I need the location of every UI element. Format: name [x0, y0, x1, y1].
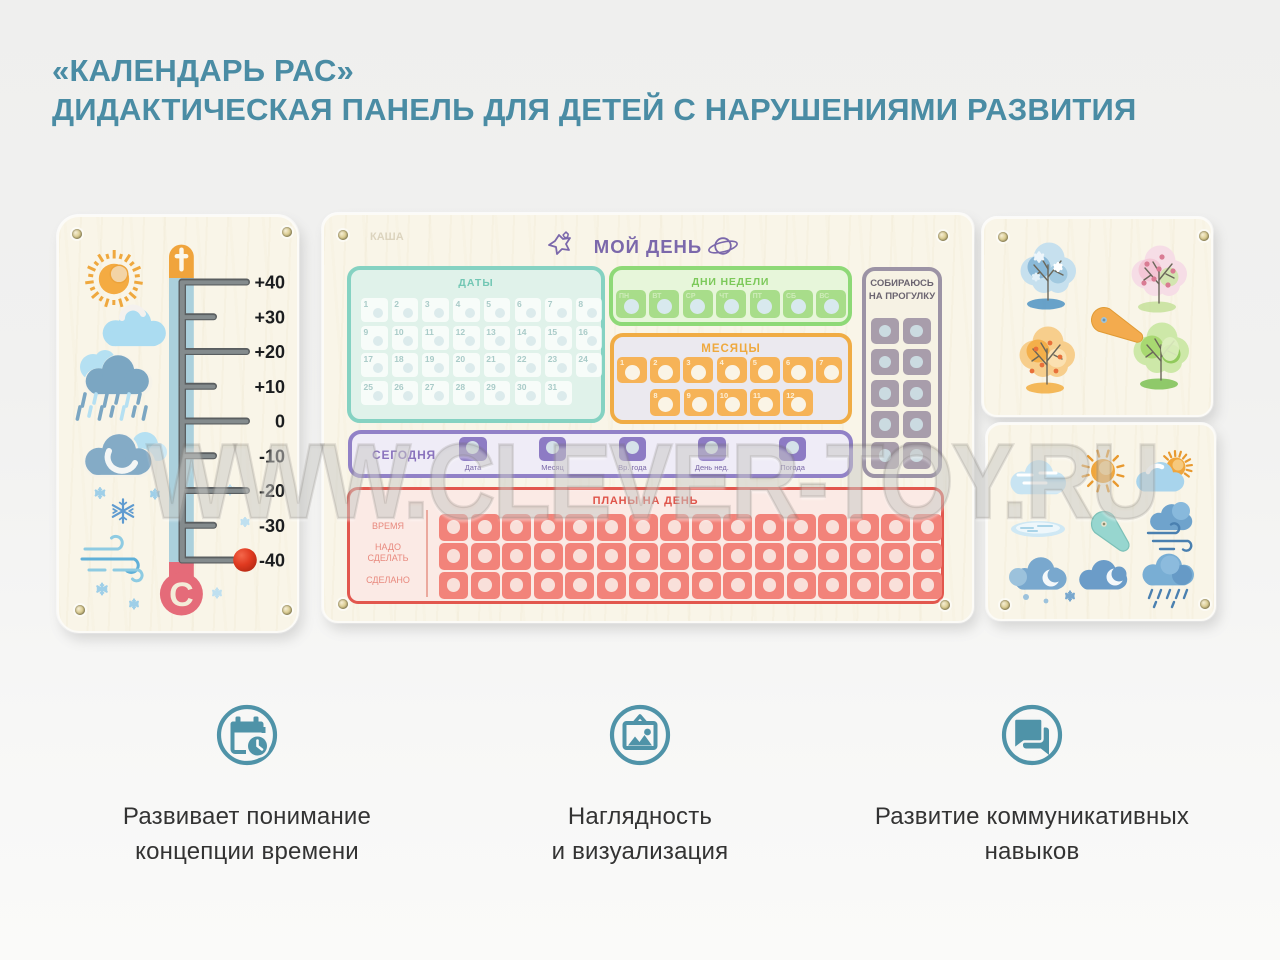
svg-text:C: C: [169, 576, 194, 614]
svg-text:+40: +40: [254, 273, 285, 293]
svg-text:+30: +30: [254, 307, 285, 327]
svg-text:+20: +20: [254, 342, 285, 362]
svg-text:+10: +10: [254, 377, 285, 397]
svg-text:-40: -40: [259, 551, 285, 571]
